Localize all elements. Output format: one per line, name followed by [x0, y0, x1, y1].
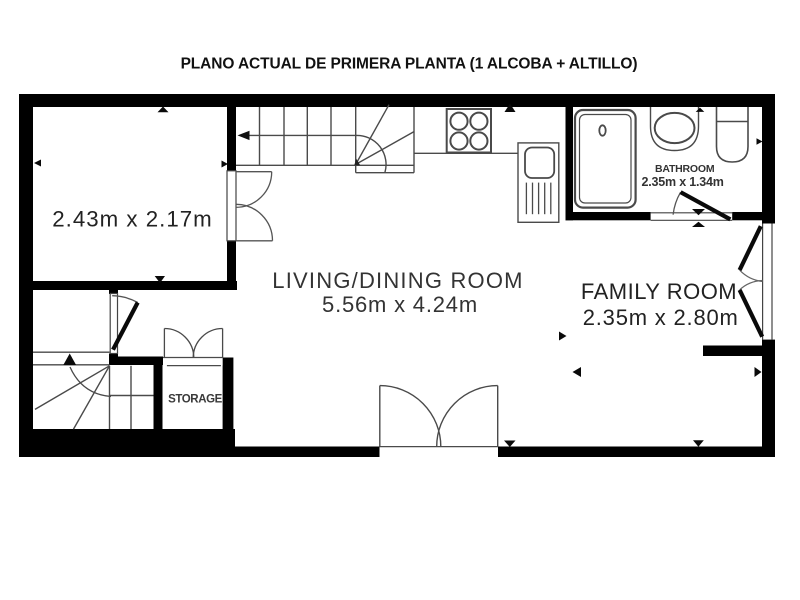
svg-text:PLANO ACTUAL DE PRIMERA PLANTA: PLANO ACTUAL DE PRIMERA PLANTA (1 ALCOBA…: [181, 56, 638, 73]
svg-text:STORAGE: STORAGE: [168, 394, 223, 406]
svg-text:2.35m x 1.34m: 2.35m x 1.34m: [642, 175, 724, 189]
svg-text:2.43m x 2.17m: 2.43m x 2.17m: [52, 207, 212, 232]
svg-text:FAMILY ROOM: FAMILY ROOM: [581, 279, 737, 304]
svg-text:2.35m x 2.80m: 2.35m x 2.80m: [583, 305, 739, 330]
svg-text:LIVING/DINING ROOM: LIVING/DINING ROOM: [272, 268, 523, 293]
svg-text:BATHROOM: BATHROOM: [655, 163, 715, 175]
svg-text:5.56m x 4.24m: 5.56m x 4.24m: [322, 292, 478, 317]
